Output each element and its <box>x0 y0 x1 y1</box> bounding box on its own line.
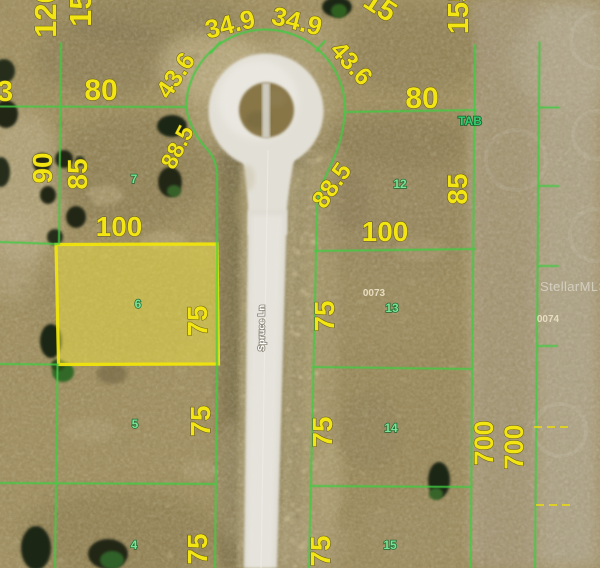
svg-text:0074: 0074 <box>537 314 560 325</box>
svg-text:14: 14 <box>384 421 398 435</box>
svg-text:150: 150 <box>63 0 98 27</box>
svg-text:4: 4 <box>131 538 138 552</box>
svg-text:0073: 0073 <box>363 288 386 299</box>
svg-text:Spruce Ln: Spruce Ln <box>257 305 268 352</box>
svg-text:120: 120 <box>28 0 63 38</box>
svg-text:75: 75 <box>182 533 213 564</box>
svg-text:85: 85 <box>442 173 473 204</box>
svg-text:700: 700 <box>469 420 499 465</box>
svg-text:80: 80 <box>405 82 438 115</box>
svg-text:3: 3 <box>0 76 13 108</box>
svg-text:7: 7 <box>131 172 138 186</box>
svg-text:80: 80 <box>84 74 117 107</box>
svg-text:75: 75 <box>305 535 336 566</box>
svg-text:75: 75 <box>182 305 213 336</box>
svg-text:85: 85 <box>62 158 93 189</box>
svg-text:StellarMLS: StellarMLS <box>540 279 600 294</box>
svg-text:90: 90 <box>27 152 58 183</box>
svg-text:100: 100 <box>362 216 409 247</box>
svg-text:155: 155 <box>443 0 475 34</box>
svg-text:5: 5 <box>132 417 139 431</box>
svg-text:12: 12 <box>393 177 407 191</box>
svg-text:TAB: TAB <box>458 114 482 128</box>
svg-text:13: 13 <box>385 301 399 315</box>
svg-text:6: 6 <box>135 297 142 311</box>
svg-text:15: 15 <box>383 538 397 552</box>
svg-text:100: 100 <box>96 211 143 242</box>
svg-text:75: 75 <box>309 300 340 331</box>
svg-text:700: 700 <box>499 424 529 469</box>
svg-text:75: 75 <box>307 416 338 447</box>
svg-text:75: 75 <box>185 405 216 436</box>
